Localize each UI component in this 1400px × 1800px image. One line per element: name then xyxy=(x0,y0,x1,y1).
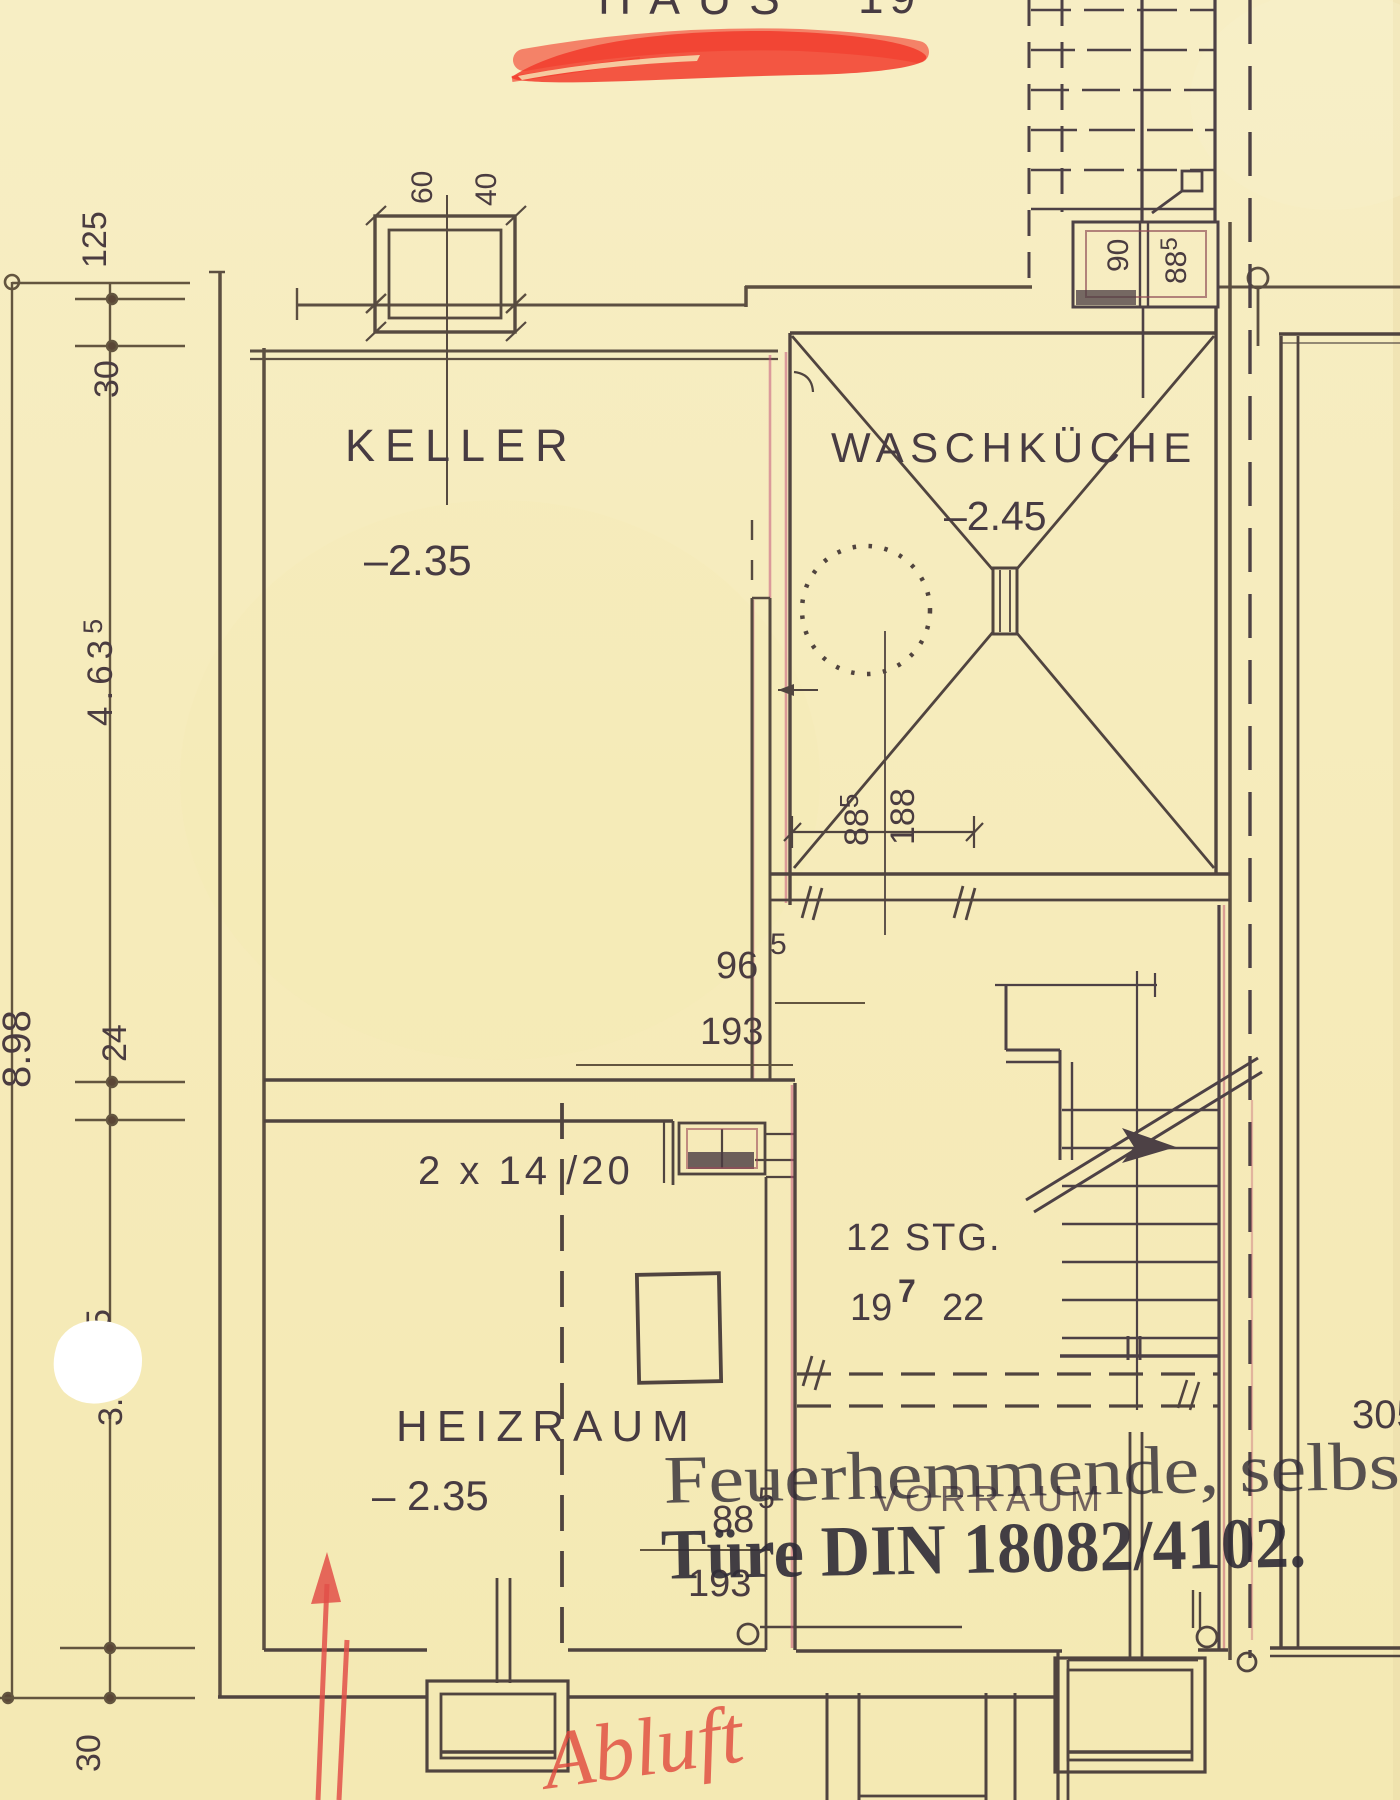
svg-text:– 2.35: – 2.35 xyxy=(372,1472,489,1519)
svg-text:KELLER: KELLER xyxy=(345,420,578,471)
svg-text:60: 60 xyxy=(406,171,439,204)
svg-text:HEIZRAUM: HEIZRAUM xyxy=(396,1402,698,1451)
svg-text:19: 19 xyxy=(858,0,921,23)
svg-text:HAUS: HAUS xyxy=(598,0,798,24)
svg-text:90: 90 xyxy=(1102,239,1135,272)
svg-text:193: 193 xyxy=(700,1011,763,1053)
svg-text:30: 30 xyxy=(70,1734,108,1772)
svg-text:188: 188 xyxy=(884,788,922,845)
svg-text:96: 96 xyxy=(716,945,758,987)
svg-text:12 STG.: 12 STG. xyxy=(846,1217,1002,1259)
svg-text:125: 125 xyxy=(76,211,114,268)
svg-text:24: 24 xyxy=(96,1024,134,1062)
svg-text:Türe DIN 18082/4102.: Türe DIN 18082/4102. xyxy=(660,1502,1306,1594)
svg-text:22: 22 xyxy=(942,1287,984,1329)
svg-text:5: 5 xyxy=(770,928,787,961)
svg-text:–2.45: –2.45 xyxy=(944,493,1047,539)
svg-text:40: 40 xyxy=(470,173,503,206)
svg-text:WASCHKÜCHE: WASCHKÜCHE xyxy=(831,424,1198,471)
svg-text:30: 30 xyxy=(88,360,126,398)
svg-text:–2.35: –2.35 xyxy=(364,537,472,585)
svg-text:19: 19 xyxy=(850,1287,892,1329)
svg-text:2 x 14 /20: 2 x 14 /20 xyxy=(418,1149,634,1193)
svg-text:7: 7 xyxy=(898,1273,916,1309)
svg-text:8.98: 8.98 xyxy=(0,1010,39,1088)
